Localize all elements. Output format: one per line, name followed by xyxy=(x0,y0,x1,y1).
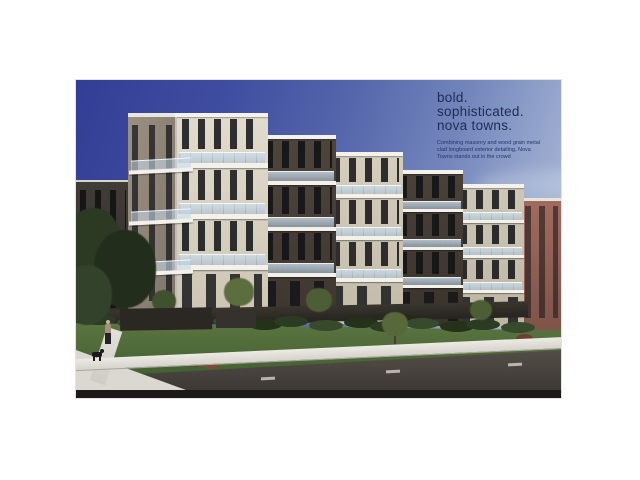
floor-row xyxy=(396,212,463,250)
tree-small xyxy=(224,278,254,306)
facade-segment-light-b xyxy=(328,152,403,324)
floor-row xyxy=(456,188,524,223)
window-strip xyxy=(460,190,520,209)
window-strip xyxy=(266,141,332,168)
roof-fascia xyxy=(128,113,177,117)
headline-line-3: nova towns. xyxy=(437,119,557,133)
tree-small xyxy=(470,300,492,320)
dog-head xyxy=(100,349,104,353)
dark-entry-wall xyxy=(216,312,256,328)
floor-row xyxy=(456,258,524,293)
window-strip xyxy=(333,158,399,182)
hedge xyxy=(309,320,343,331)
roof-fascia xyxy=(522,198,561,201)
architectural-rendering-photo: bold. sophisticated. nova towns. Combini… xyxy=(76,80,561,398)
page-canvas: bold. sophisticated. nova towns. Combini… xyxy=(0,0,640,480)
headline-block: bold. sophisticated. nova towns. Combini… xyxy=(437,91,557,161)
window-strip xyxy=(182,119,263,149)
floor-row xyxy=(261,231,336,277)
hedge xyxy=(466,319,500,330)
floor-row xyxy=(396,174,463,212)
floor-row xyxy=(261,185,336,231)
floor-row xyxy=(456,223,524,258)
headline-line-1: bold. xyxy=(437,91,557,105)
window-strip xyxy=(333,200,399,224)
headline-line-2: sophisticated. xyxy=(437,105,557,119)
tree-small xyxy=(382,312,408,336)
pedestrian-legs xyxy=(105,333,111,344)
window-strip xyxy=(266,187,332,214)
floor-row xyxy=(261,139,336,185)
tree-small xyxy=(306,288,332,312)
window-strip xyxy=(525,206,558,318)
floor-row xyxy=(328,156,403,198)
window-strip xyxy=(266,233,332,260)
floor-row xyxy=(328,198,403,240)
floor-row xyxy=(328,240,403,282)
floor-row xyxy=(396,250,463,288)
window-strip xyxy=(460,225,520,244)
tagline-text: Combining masonry and wood grain metal c… xyxy=(437,140,541,161)
window-strip xyxy=(400,214,459,236)
dog-legs xyxy=(99,357,101,361)
window-strip xyxy=(182,221,263,251)
roof-fascia xyxy=(76,180,130,182)
window-strip xyxy=(400,176,459,198)
window-strip xyxy=(460,260,520,279)
hedge xyxy=(405,318,439,329)
dark-entry-wall xyxy=(120,307,212,331)
window-strip xyxy=(333,242,399,266)
dog-legs xyxy=(93,357,95,361)
window-strip xyxy=(182,170,263,200)
window-strip xyxy=(400,252,459,274)
road-edge-shadow xyxy=(76,390,561,398)
